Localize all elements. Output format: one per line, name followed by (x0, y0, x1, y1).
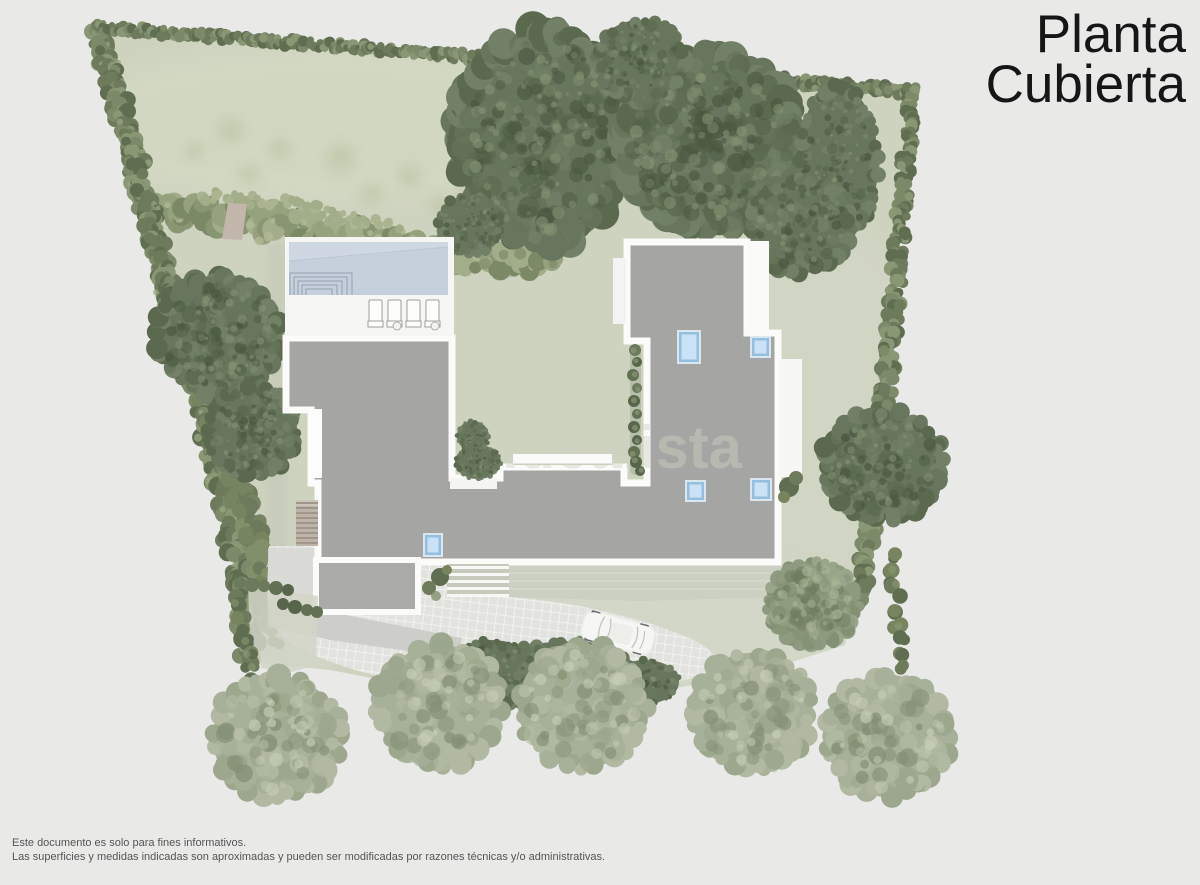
svg-text:idealista: idealista (502, 414, 743, 481)
